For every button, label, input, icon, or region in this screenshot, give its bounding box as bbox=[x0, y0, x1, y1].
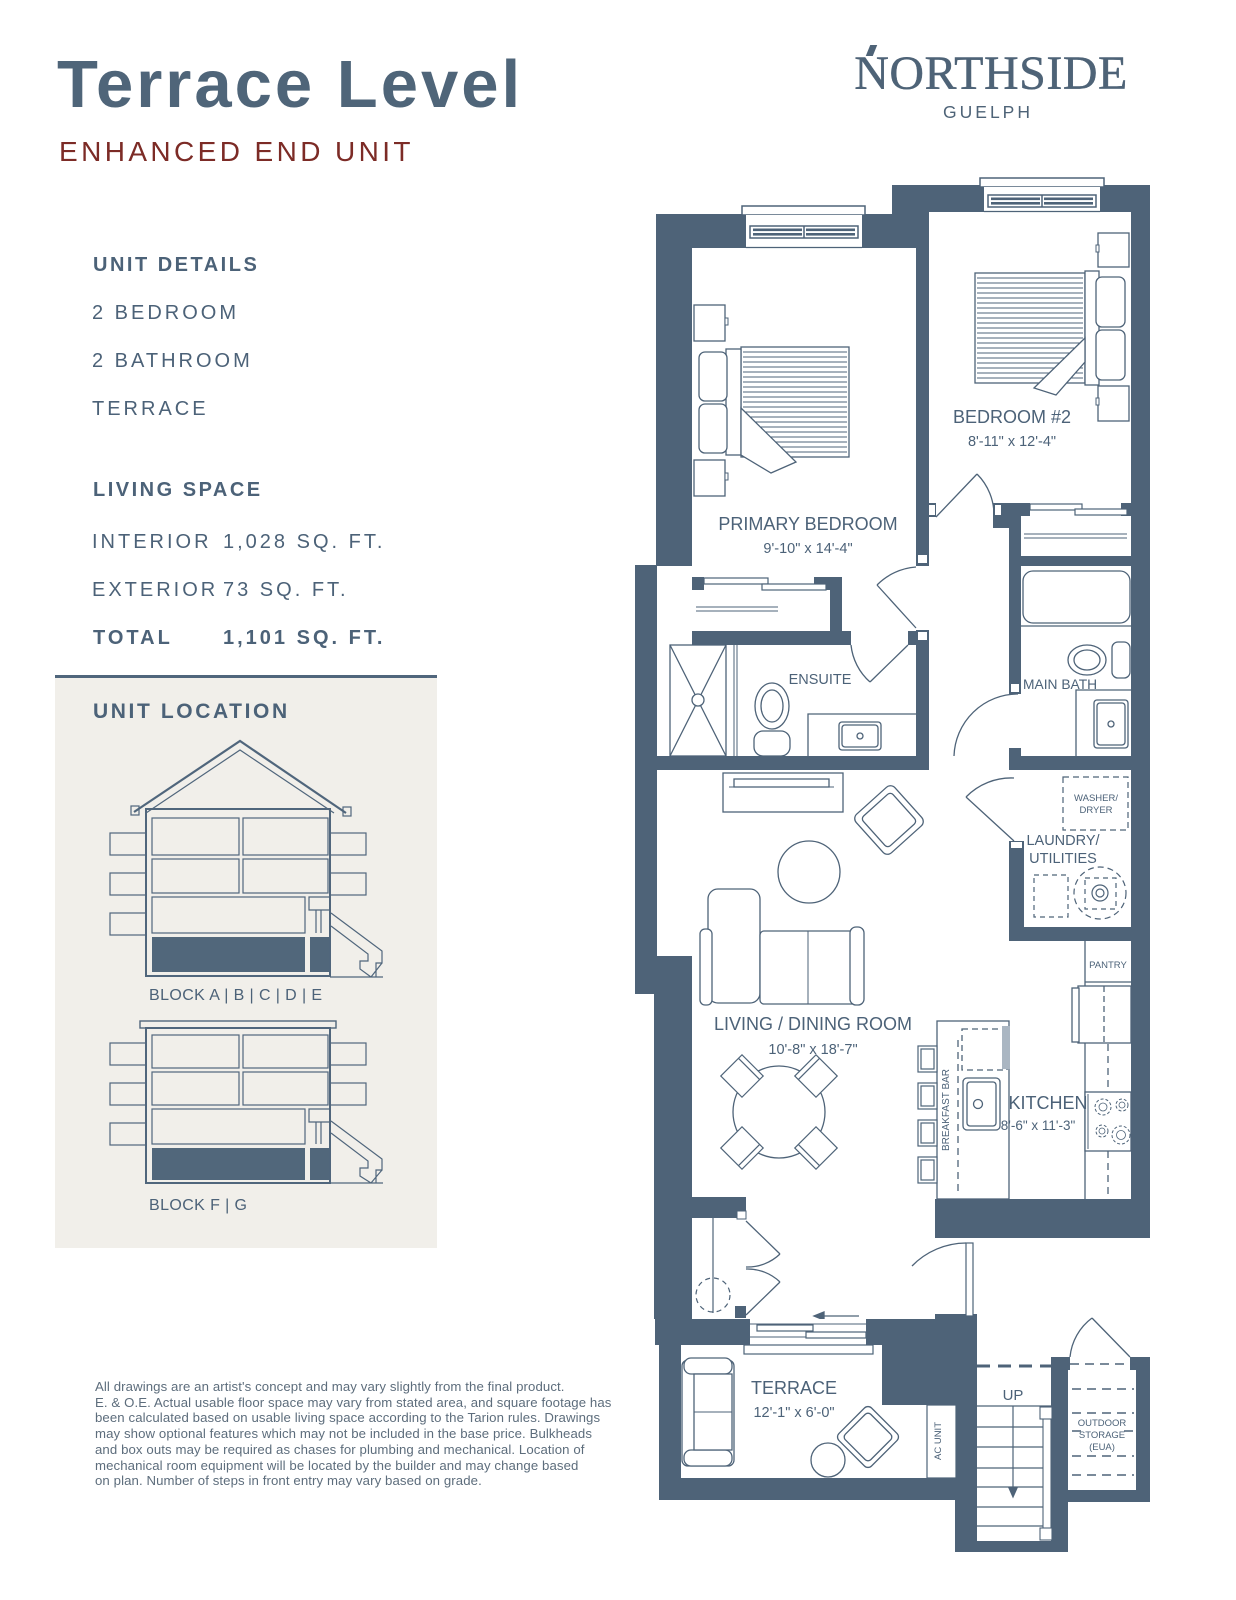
svg-text:TERRACE: TERRACE bbox=[751, 1378, 837, 1398]
svg-text:12'-1" x 6'-0": 12'-1" x 6'-0" bbox=[753, 1405, 834, 1421]
svg-text:BREAKFAST BAR: BREAKFAST BAR bbox=[941, 1069, 952, 1151]
svg-text:MAIN BATH: MAIN BATH bbox=[1023, 677, 1097, 692]
svg-text:LAUNDRY/: LAUNDRY/ bbox=[1026, 833, 1100, 849]
svg-text:BEDROOM #2: BEDROOM #2 bbox=[953, 407, 1071, 427]
svg-text:KITCHEN: KITCHEN bbox=[1008, 1093, 1087, 1113]
svg-text:8'-6" x 11'-3": 8'-6" x 11'-3" bbox=[1001, 1118, 1076, 1133]
svg-text:9'-10" x 14'-4": 9'-10" x 14'-4" bbox=[763, 541, 852, 557]
svg-text:UP: UP bbox=[1003, 1387, 1024, 1404]
svg-text:AC UNIT: AC UNIT bbox=[933, 1422, 944, 1460]
svg-text:(EUA): (EUA) bbox=[1089, 1442, 1115, 1453]
svg-text:OUTDOOR: OUTDOOR bbox=[1078, 1418, 1127, 1429]
svg-text:WASHER/: WASHER/ bbox=[1074, 793, 1118, 804]
svg-text:ENSUITE: ENSUITE bbox=[789, 672, 852, 688]
svg-text:PANTRY: PANTRY bbox=[1089, 960, 1127, 971]
svg-text:PRIMARY BEDROOM: PRIMARY BEDROOM bbox=[718, 514, 897, 534]
svg-text:UTILITIES: UTILITIES bbox=[1029, 851, 1097, 867]
svg-text:10'-8" x 18'-7": 10'-8" x 18'-7" bbox=[768, 1042, 857, 1058]
svg-text:STORAGE: STORAGE bbox=[1079, 1430, 1125, 1441]
svg-text:8'-11" x 12'-4": 8'-11" x 12'-4" bbox=[968, 434, 1056, 450]
svg-text:DRYER: DRYER bbox=[1079, 805, 1112, 816]
svg-text:LIVING / DINING ROOM: LIVING / DINING ROOM bbox=[714, 1014, 912, 1034]
